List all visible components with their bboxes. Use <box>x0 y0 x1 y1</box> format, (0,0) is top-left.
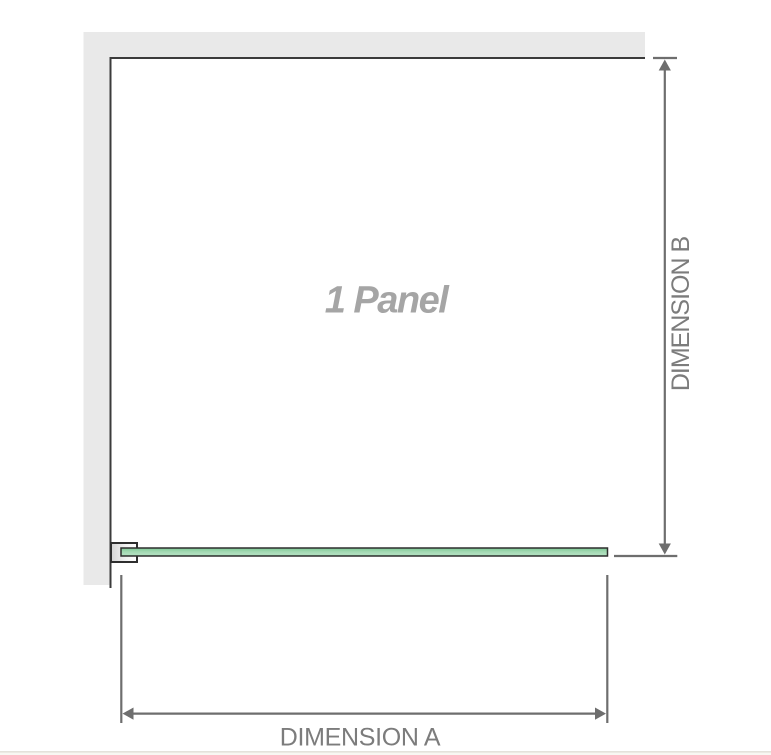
svg-text:DIMENSION B: DIMENSION B <box>667 237 695 392</box>
svg-text:DIMENSION A: DIMENSION A <box>280 724 441 752</box>
svg-text:1 Panel: 1 Panel <box>325 280 451 322</box>
